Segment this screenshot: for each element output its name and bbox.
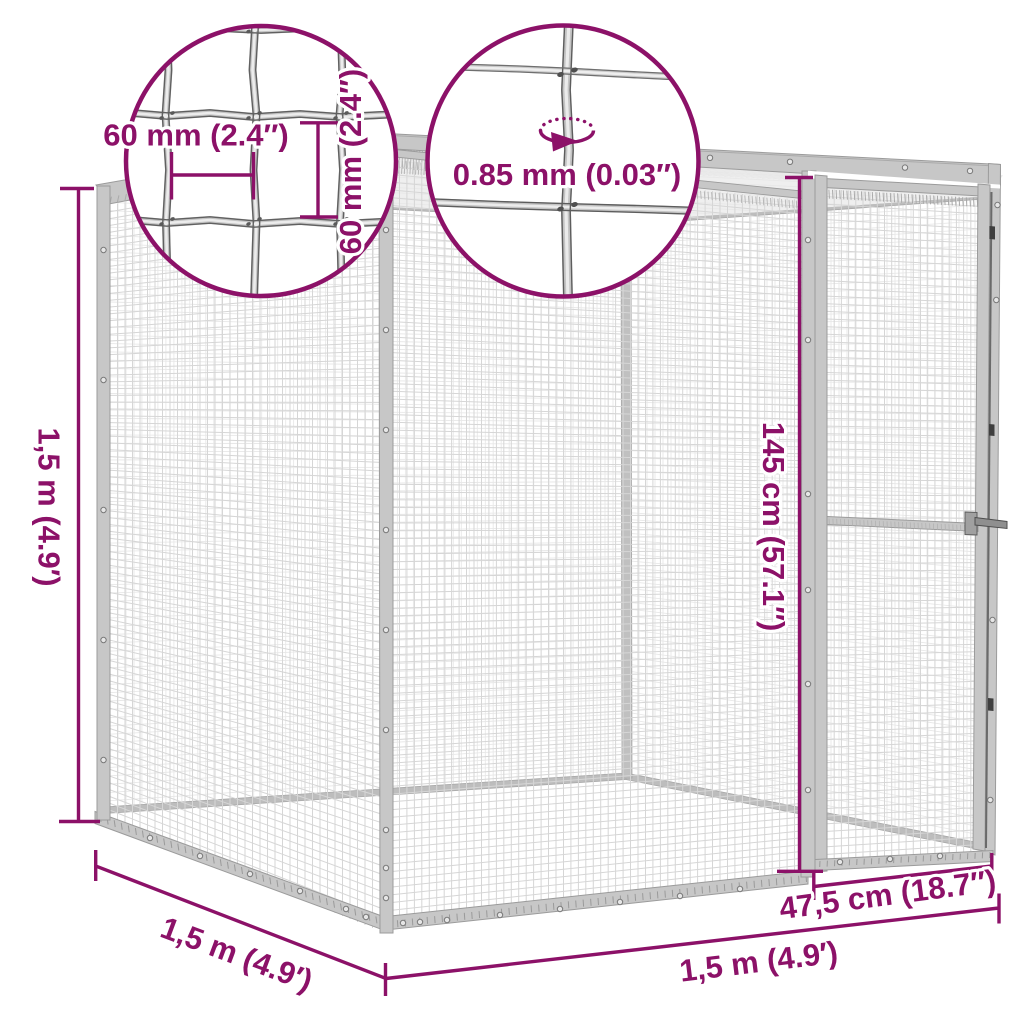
svg-text:1,5 m (4.9′): 1,5 m (4.9′) [32,427,67,586]
svg-text:60 mm (2.4″): 60 mm (2.4″) [333,69,368,254]
svg-text:60 mm (2.4″): 60 mm (2.4″) [103,117,288,152]
svg-text:145 cm (57.1″): 145 cm (57.1″) [756,422,791,632]
svg-text:0.85 mm (0.03″): 0.85 mm (0.03″) [453,157,682,192]
